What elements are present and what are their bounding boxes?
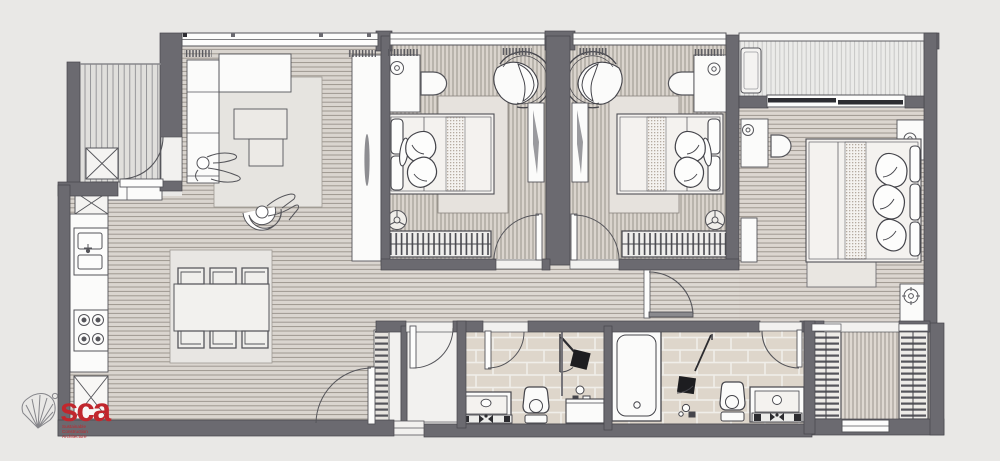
svg-text:Architecture: Architecture bbox=[62, 434, 87, 439]
svg-text:sca: sca bbox=[60, 391, 112, 428]
